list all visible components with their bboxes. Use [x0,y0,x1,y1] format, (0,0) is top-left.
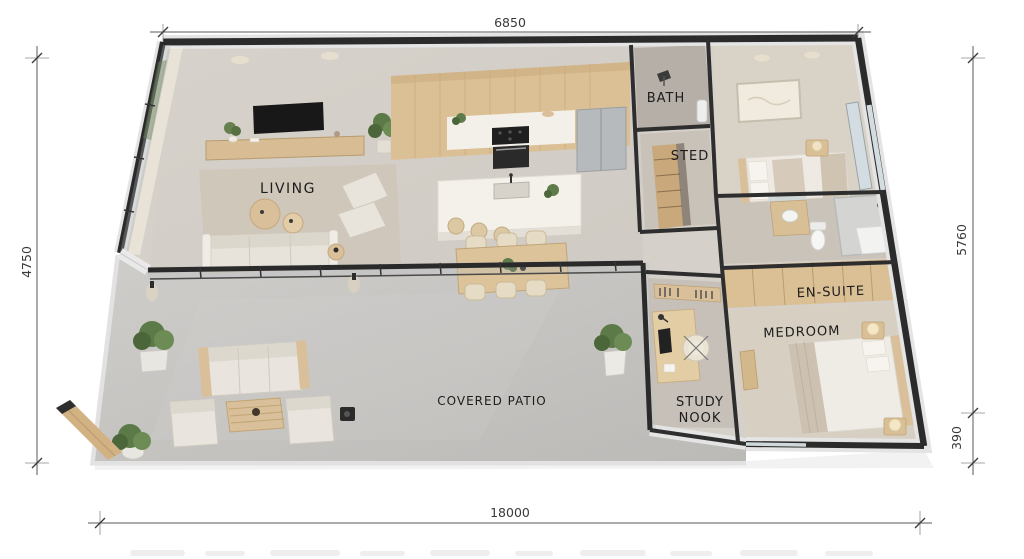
label-bath: BATH [647,91,686,106]
bottom-smudges [130,550,873,556]
label-living: LIVING [260,181,316,197]
dim-top-value: 6850 [494,15,526,30]
console-vase [334,131,340,137]
dimension-right: 5760 390 [949,46,985,475]
dim-right-value: 5760 [954,224,969,256]
outdoor-sofa [198,340,310,397]
outdoor-coffee-table [226,398,284,432]
bedside-lamp [812,141,822,151]
dining-chair [526,231,546,246]
floorplan-canvas: LIVING BATH STED EN-SUITE MEDROOM STUDY … [0,0,1024,559]
console-books [250,138,259,142]
dining-chair [526,280,546,296]
dining-chair [496,282,516,298]
papers [664,364,675,372]
monitor [658,328,672,354]
medroom-slider-glass [746,444,806,445]
bedside-lamp [889,419,901,431]
dim-right-offset-value: 390 [949,426,964,450]
ceiling-light-glow [231,56,249,64]
ceiling-light-glow [321,52,339,60]
dimension-bottom: 18000 [88,505,932,535]
dim-bottom-value: 18000 [490,505,530,520]
toilet [811,230,825,250]
cooktop [492,126,529,145]
dimension-left: 4750 [19,46,49,475]
island-sink [494,182,529,199]
floorplan-render: LIVING BATH STED EN-SUITE MEDROOM STUDY … [0,0,1024,559]
wall-sconce [150,281,154,288]
label-patio: COVERED PATIO [437,394,546,408]
coffee-table-small [283,213,303,233]
bath-fixture [697,100,707,122]
tv-screen [253,102,324,134]
wall-top [163,38,858,42]
counter-bowl [542,111,554,117]
label-study-1: STUDY [676,395,724,410]
bedside-lamp [867,323,879,335]
dining-chair [465,284,485,300]
label-sted: STED [671,149,709,164]
basin [782,210,798,222]
coffee-table [250,199,280,229]
bar-stool [448,218,464,234]
label-ensuite: EN-SUITE [796,284,865,301]
toilet-tank [810,222,826,230]
wall-art [737,80,801,122]
label-bedroom: MEDROOM [763,324,841,342]
wall-sconce [352,273,356,280]
dim-left-value: 4750 [19,246,34,278]
label-study-2: NOOK [679,411,722,426]
